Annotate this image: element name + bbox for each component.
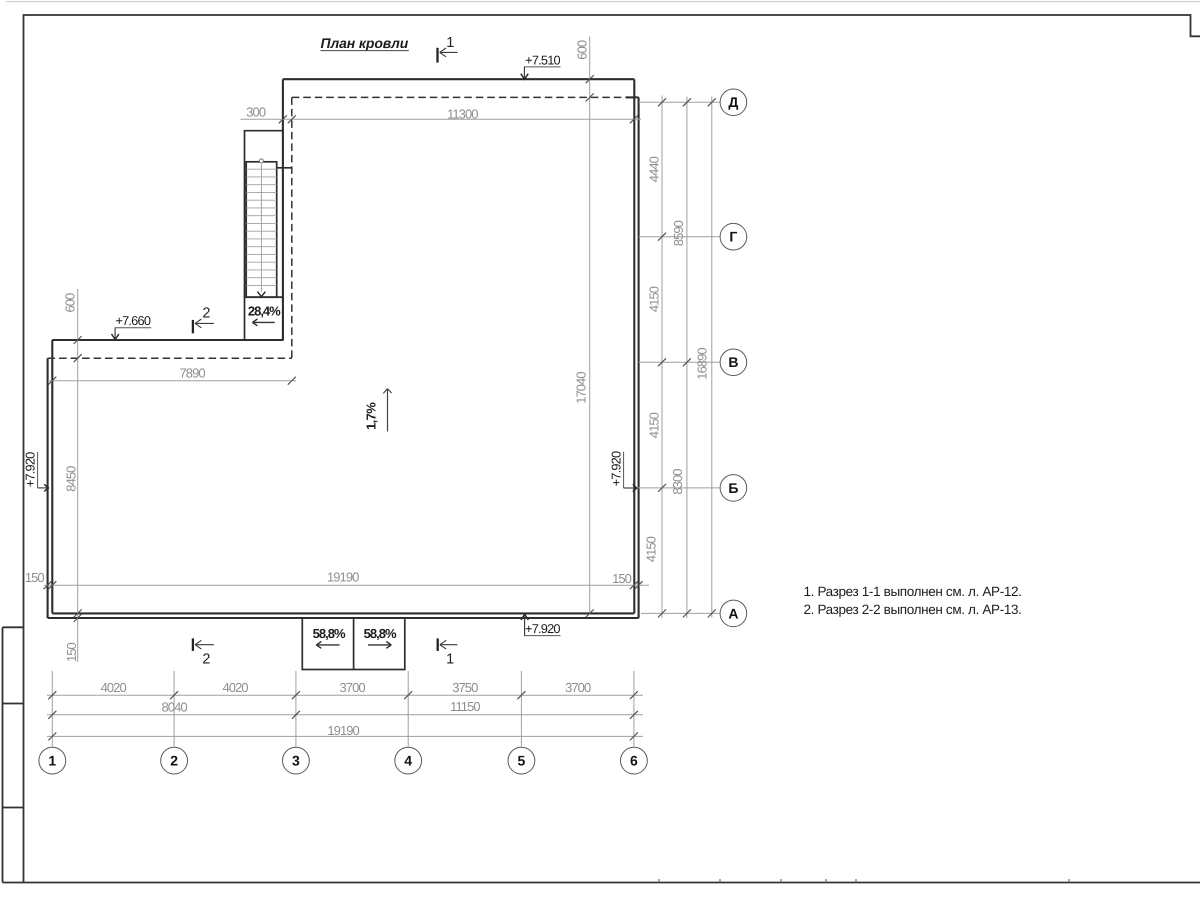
svg-text:+7.660: +7.660	[115, 313, 150, 328]
svg-text:3700: 3700	[565, 680, 591, 695]
svg-text:Д: Д	[728, 94, 738, 110]
svg-text:150: 150	[25, 570, 45, 585]
svg-text:План кровли: План кровли	[321, 35, 409, 51]
svg-text:4150: 4150	[647, 412, 662, 438]
svg-text:28,4%: 28,4%	[248, 304, 281, 319]
svg-text:4150: 4150	[647, 286, 662, 312]
svg-text:2: 2	[202, 305, 210, 321]
svg-text:150: 150	[612, 571, 632, 586]
svg-text:Г: Г	[729, 229, 737, 245]
svg-text:600: 600	[574, 40, 589, 60]
svg-text:4: 4	[404, 753, 412, 769]
svg-text:11300: 11300	[447, 107, 478, 122]
svg-text:8300: 8300	[670, 469, 685, 495]
svg-text:А: А	[728, 605, 738, 621]
svg-text:1. Разрез 1-1 выполнен см. л.: 1. Разрез 1-1 выполнен см. л. АР-12.	[804, 584, 1022, 599]
svg-text:+7.920: +7.920	[525, 621, 560, 636]
svg-text:3750: 3750	[452, 680, 478, 695]
svg-text:300: 300	[246, 105, 266, 120]
svg-text:5: 5	[518, 753, 526, 769]
svg-text:19190: 19190	[327, 570, 359, 585]
svg-text:16890: 16890	[695, 348, 710, 380]
svg-text:19190: 19190	[327, 723, 359, 738]
svg-text:4440: 4440	[647, 156, 662, 182]
svg-text:1: 1	[446, 651, 454, 667]
svg-text:4020: 4020	[222, 680, 248, 695]
svg-text:17040: 17040	[574, 372, 589, 404]
svg-text:2. Разрез 2-2 выполнен см. л.: 2. Разрез 2-2 выполнен см. л. АР-13.	[804, 602, 1022, 617]
svg-text:3700: 3700	[340, 680, 366, 695]
svg-text:2: 2	[170, 753, 178, 769]
svg-text:8450: 8450	[64, 466, 79, 492]
svg-text:+7.510: +7.510	[525, 52, 560, 67]
svg-text:11150: 11150	[450, 699, 480, 714]
svg-text:600: 600	[63, 293, 78, 313]
svg-text:8590: 8590	[671, 220, 686, 246]
svg-text:Б: Б	[728, 480, 738, 496]
svg-text:4020: 4020	[101, 680, 127, 695]
svg-text:1,7%: 1,7%	[364, 402, 379, 430]
svg-text:7890: 7890	[180, 365, 206, 380]
svg-text:1: 1	[48, 753, 56, 769]
svg-text:+7.920: +7.920	[23, 452, 38, 487]
svg-text:1: 1	[446, 35, 454, 51]
svg-text:150: 150	[64, 642, 79, 662]
svg-text:3: 3	[292, 753, 300, 769]
svg-text:58,8%: 58,8%	[313, 626, 346, 641]
svg-text:В: В	[728, 354, 738, 370]
svg-text:+7.920: +7.920	[609, 451, 624, 486]
svg-text:2: 2	[202, 651, 210, 667]
svg-text:4150: 4150	[644, 536, 659, 562]
svg-text:58,8%: 58,8%	[364, 626, 397, 641]
svg-text:6: 6	[630, 753, 638, 769]
